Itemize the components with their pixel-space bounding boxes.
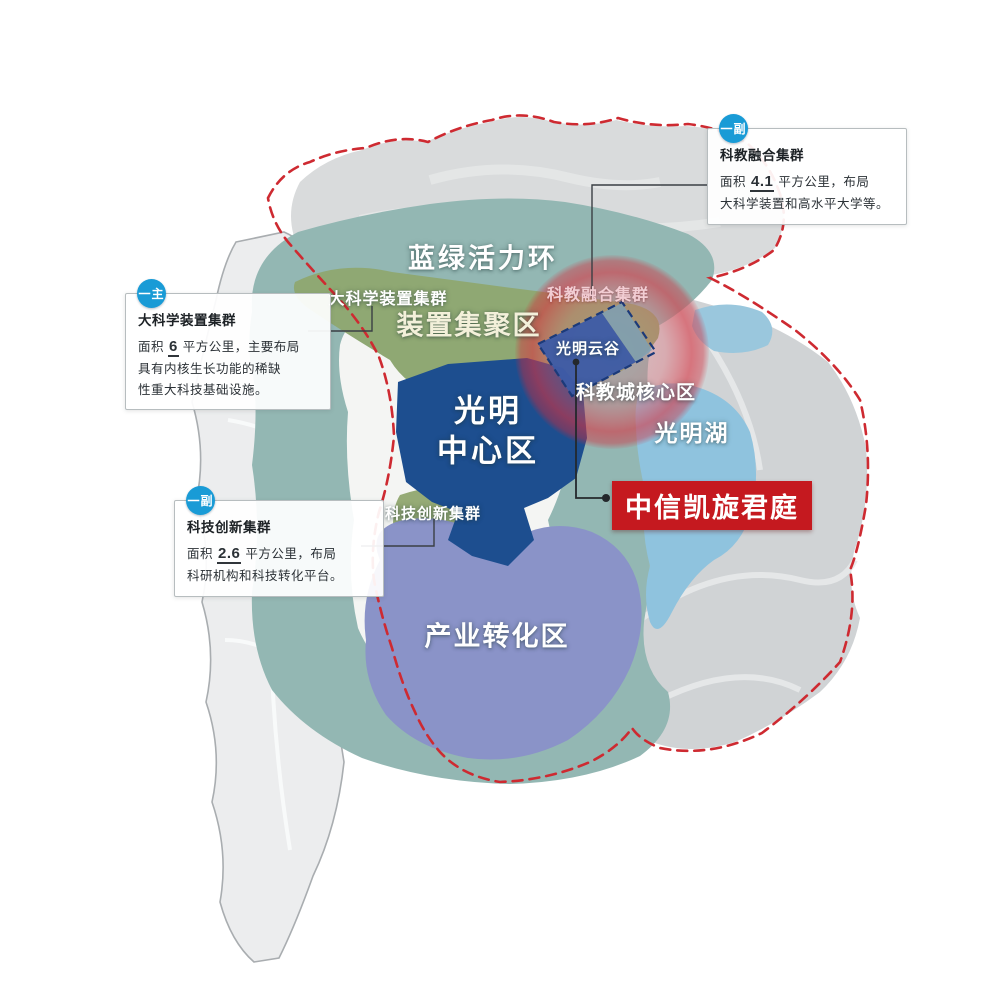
callout-tech-body: 面积 2.6 平方公里，布局 科研机构和科技转化平台。	[187, 542, 373, 587]
area-text-prefix: 面积	[138, 340, 168, 354]
area-value: 2.6	[217, 545, 241, 564]
connector-property-dot-end	[602, 494, 610, 502]
label-industry-zone: 产业转化区	[425, 615, 570, 654]
label-lake: 光明湖	[655, 414, 730, 448]
area-value: 4.1	[750, 173, 774, 192]
callout-device-title: 大科学装置集群	[138, 309, 320, 329]
area-text-suffix: 平方公里，布局	[241, 547, 336, 561]
callout-tech-title: 科技创新集群	[187, 516, 373, 536]
label-tech-cluster: 科技创新集群	[385, 503, 481, 524]
label-cloud-valley: 光明云谷	[556, 338, 620, 359]
label-edu-fusion-cluster: 科教融合集群	[547, 281, 649, 305]
property-name-badge: 中信凯旋君庭	[612, 481, 812, 530]
label-blue-green-ring: 蓝绿活力环	[408, 237, 558, 276]
label-center-zone: 光明 中心区	[437, 392, 539, 473]
label-center-line2: 中心区	[437, 432, 539, 472]
callout-line: 大科学装置和高水平大学等。	[720, 197, 889, 211]
connector-property-dot-top	[573, 359, 580, 366]
area-value: 6	[168, 338, 179, 357]
label-center-line1: 光明	[437, 392, 539, 432]
callout-edu-fusion-body: 面积 4.1 平方公里，布局 大科学装置和高水平大学等。	[720, 170, 896, 215]
callout-line: 具有内核生长功能的稀缺	[138, 362, 281, 376]
label-device-zone: 装置集聚区	[397, 304, 542, 343]
callout-line: 性重大科技基础设施。	[138, 383, 268, 397]
callout-device-badge: 一主	[137, 279, 166, 308]
callout-device-cluster: 一主 大科学装置集群 面积 6 平方公里，主要布局 具有内核生长功能的稀缺 性重…	[125, 293, 331, 410]
planning-map-screenshot: 蓝绿活力环 大科学装置集群 装置集聚区 科教融合集群 光明云谷 科教城核心区 光…	[0, 0, 1000, 1000]
label-science-core: 科教城核心区	[576, 378, 696, 405]
callout-edu-fusion-badge: 一副	[719, 114, 748, 143]
callout-tech-innovation: 一副 科技创新集群 面积 2.6 平方公里，布局 科研机构和科技转化平台。	[174, 500, 384, 597]
callout-edu-fusion-title: 科教融合集群	[720, 144, 896, 164]
callout-edu-fusion: 一副 科教融合集群 面积 4.1 平方公里，布局 大科学装置和高水平大学等。	[707, 128, 907, 225]
area-text-suffix: 平方公里，布局	[774, 175, 869, 189]
callout-line: 科研机构和科技转化平台。	[187, 569, 343, 583]
area-text-prefix: 面积	[720, 175, 750, 189]
area-text-prefix: 面积	[187, 547, 217, 561]
callout-device-body: 面积 6 平方公里，主要布局 具有内核生长功能的稀缺 性重大科技基础设施。	[138, 335, 320, 400]
callout-tech-badge: 一副	[186, 486, 215, 515]
area-text-suffix: 平方公里，主要布局	[179, 340, 300, 354]
